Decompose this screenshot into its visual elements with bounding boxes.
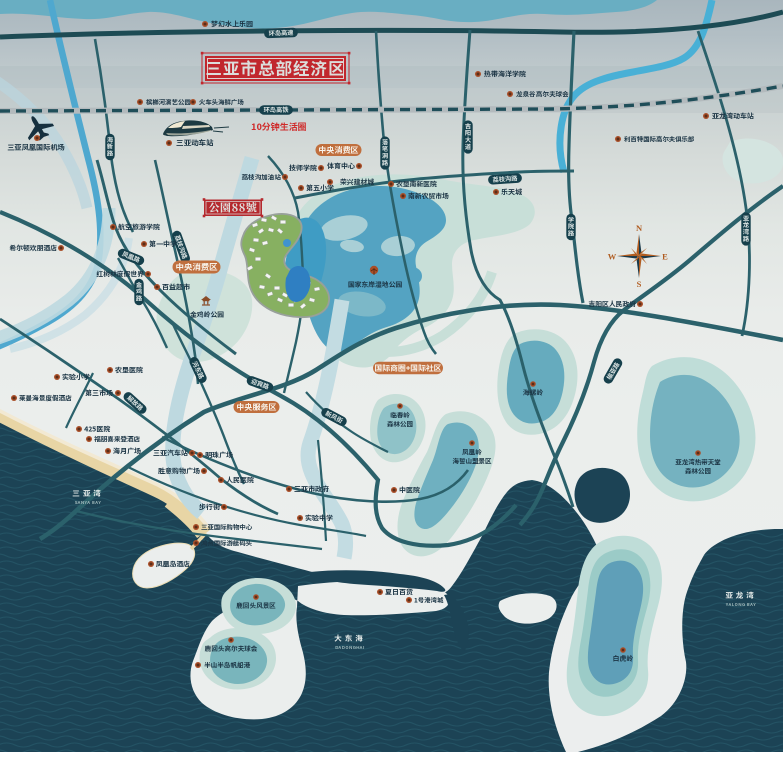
svg-text:人民医院: 人民医院: [226, 476, 254, 486]
svg-text:龙泉谷高尔夫球会: 龙泉谷高尔夫球会: [516, 88, 569, 98]
svg-text:森林公园: 森林公园: [684, 465, 712, 475]
svg-text:三亚湾: 三亚湾: [72, 488, 104, 499]
svg-text:DADONGHAI: DADONGHAI: [335, 645, 365, 651]
svg-text:凤凰岛酒店: 凤凰岛酒店: [156, 558, 190, 568]
svg-text:荔枝沟路: 荔枝沟路: [492, 173, 518, 184]
svg-text:三亚国际购物中心: 三亚国际购物中心: [201, 522, 253, 531]
svg-text:YALONG BAY: YALONG BAY: [726, 602, 756, 608]
svg-text:第五小学: 第五小学: [306, 184, 334, 194]
svg-text:鸿州国际游艇码头: 鸿州国际游艇码头: [201, 538, 253, 547]
svg-text:中央服务区: 中央服务区: [237, 402, 277, 413]
svg-text:路: 路: [568, 228, 575, 237]
svg-text:半山半岛帆船港: 半山半岛帆船港: [204, 659, 251, 669]
svg-text:三亚凤凰国际机场: 三亚凤凰国际机场: [7, 143, 65, 153]
svg-text:亚龙湾: 亚龙湾: [724, 590, 757, 601]
svg-text:中央消费区: 中央消费区: [175, 261, 218, 273]
svg-text:中医院: 中医院: [399, 486, 420, 496]
svg-text:百益超市: 百益超市: [162, 283, 190, 293]
svg-text:海螺岭: 海螺岭: [523, 387, 544, 397]
svg-text:乐天城: 乐天城: [501, 188, 523, 198]
svg-text:三亚市政府: 三亚市政府: [294, 485, 329, 495]
svg-text:国家东岸湿地公园: 国家东岸湿地公园: [348, 279, 403, 289]
svg-text:荣兴建材城: 荣兴建材城: [340, 176, 374, 186]
svg-text:1号港湾城: 1号港湾城: [414, 595, 444, 604]
svg-text:南新农贸市场: 南新农贸市场: [408, 190, 449, 200]
svg-text:热带海洋学院: 热带海洋学院: [484, 70, 526, 80]
svg-text:第三市场: 第三市场: [85, 389, 113, 399]
svg-text:红树林度假世界: 红树林度假世界: [95, 268, 144, 278]
svg-text:国际商圈+国际社区: 国际商圈+国际社区: [375, 363, 442, 374]
svg-text:实验中学: 实验中学: [305, 514, 333, 524]
svg-text:火车头海鲜广场: 火车头海鲜广场: [199, 97, 244, 106]
svg-text:梦幻水上乐园: 梦幻水上乐园: [210, 20, 253, 30]
svg-text:N: N: [636, 223, 643, 233]
svg-text:三亚汽车站: 三亚汽车站: [153, 449, 188, 459]
svg-text:环岛高速: 环岛高速: [268, 28, 293, 38]
svg-text:白虎岭: 白虎岭: [613, 653, 634, 663]
svg-text:三亚市总部经济区: 三亚市总部经济区: [206, 56, 346, 80]
svg-text:步行街: 步行街: [199, 503, 220, 513]
svg-text:公園88號: 公園88號: [209, 200, 258, 216]
svg-text:荔枝沟加油站: 荔枝沟加油站: [241, 171, 281, 181]
svg-text:道: 道: [465, 142, 472, 151]
svg-text:亚龙湾动车站: 亚龙湾动车站: [712, 112, 754, 122]
svg-text:航空旅游学院: 航空旅游学院: [118, 223, 160, 233]
svg-text:技师学院: 技师学院: [289, 164, 317, 174]
svg-text:金鸡岭公园: 金鸡岭公园: [190, 309, 224, 319]
svg-text:体育中心: 体育中心: [327, 162, 355, 172]
svg-text:海月广场: 海月广场: [113, 447, 141, 457]
svg-text:鹿回头风景区: 鹿回头风景区: [235, 600, 276, 610]
svg-text:路: 路: [136, 293, 143, 302]
svg-text:福朋喜来登酒店: 福朋喜来登酒店: [94, 433, 141, 443]
svg-text:夏日百货: 夏日百货: [385, 588, 413, 598]
svg-text:实验小学: 实验小学: [62, 373, 90, 383]
svg-text:森林公园: 森林公园: [386, 418, 414, 428]
svg-text:胜意购物广场: 胜意购物广场: [158, 467, 200, 477]
svg-text:鹿回头高尔夫球会: 鹿回头高尔夫球会: [204, 643, 258, 653]
svg-text:莱曼海景度假酒店: 莱曼海景度假酒店: [19, 392, 72, 402]
svg-text:路: 路: [382, 158, 389, 167]
svg-text:农垦南新医院: 农垦南新医院: [395, 178, 437, 188]
svg-text:路: 路: [743, 234, 750, 243]
svg-text:海誓山盟景区: 海誓山盟景区: [453, 455, 492, 465]
svg-text:路: 路: [107, 148, 114, 157]
svg-text:E: E: [662, 252, 668, 262]
svg-text:SANYA BAY: SANYA BAY: [75, 500, 102, 506]
svg-text:S: S: [637, 279, 642, 289]
svg-text:10分钟生活圈: 10分钟生活圈: [251, 120, 307, 133]
svg-text:环岛高铁: 环岛高铁: [264, 105, 290, 114]
svg-text:第一中学: 第一中学: [149, 240, 177, 250]
svg-text:利百特国际高尔夫俱乐部: 利百特国际高尔夫俱乐部: [623, 134, 694, 143]
svg-text:农垦医院: 农垦医院: [114, 366, 143, 376]
svg-text:希尔顿欢朋酒店: 希尔顿欢朋酒店: [8, 242, 57, 252]
svg-text:明珠广场: 明珠广场: [205, 451, 233, 461]
svg-text:三亚动车站: 三亚动车站: [176, 138, 214, 149]
svg-text:吉阳区人民政府: 吉阳区人民政府: [588, 298, 636, 308]
svg-text:槟榔河演艺公园: 槟榔河演艺公园: [146, 97, 191, 106]
svg-text:中央消费区: 中央消费区: [319, 145, 359, 156]
svg-text:W: W: [608, 252, 617, 262]
svg-text:大东海: 大东海: [334, 633, 366, 644]
